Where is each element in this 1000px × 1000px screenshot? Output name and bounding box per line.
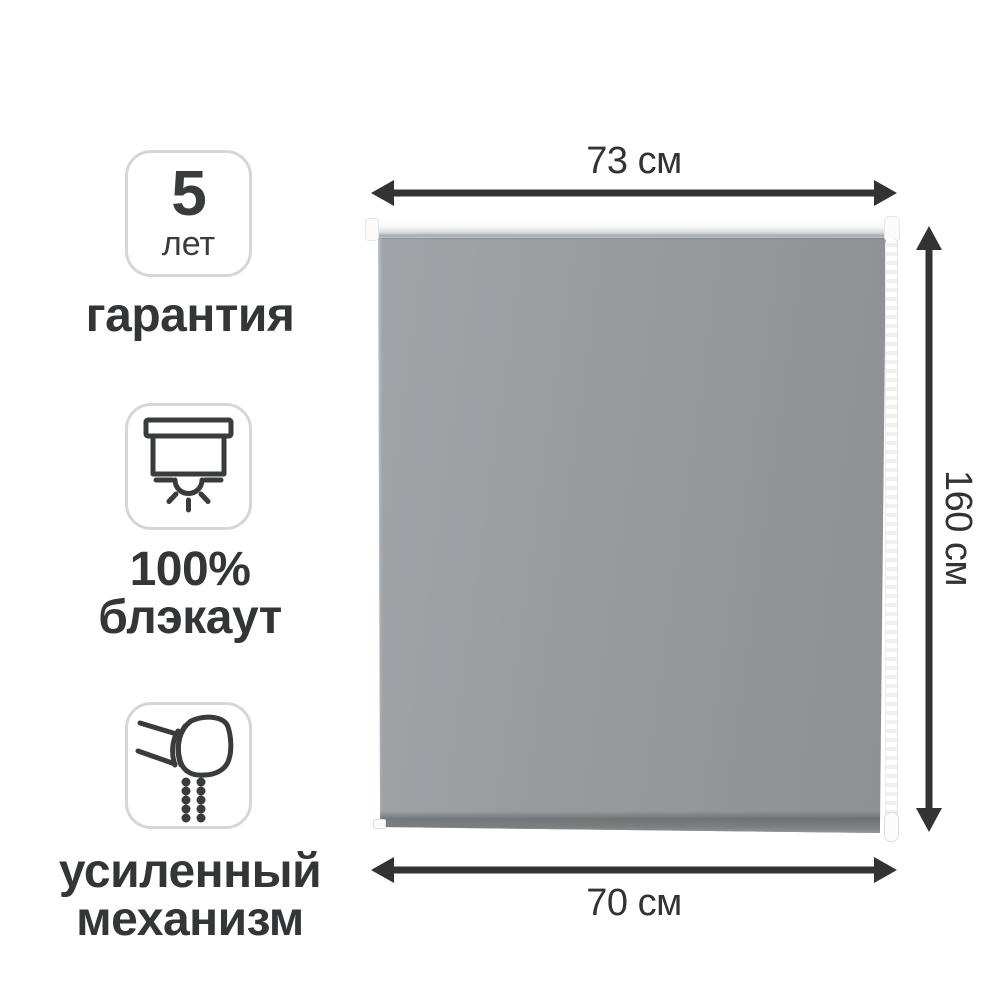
warranty-label: гарантия [10, 292, 370, 340]
cassette-endcap-left [365, 218, 379, 241]
warranty-badge: 5 лет [125, 150, 252, 277]
cassette-bar [371, 220, 899, 238]
bottom-width-arrow [368, 855, 900, 885]
warranty-years-unit: лет [162, 225, 215, 264]
roller-mechanism-chain-icon [125, 702, 252, 829]
mechanism-label-line2: механизм [10, 896, 370, 944]
mechanism-badge [125, 702, 252, 829]
blackout-blind-sun-icon [125, 403, 252, 530]
blackout-label-line2: блэкаут [10, 594, 370, 642]
blackout-badge [125, 403, 252, 530]
blackout-label-line1: 100% [10, 546, 370, 594]
warranty-years-number: 5 [171, 163, 206, 224]
bottom-bar-endcap [373, 819, 386, 829]
blind-fabric [378, 237, 886, 833]
blind-bottom-bar [378, 811, 886, 833]
mechanism-label: усиленный механизм [10, 848, 370, 944]
chain-clasp [884, 812, 899, 842]
top-width-label: 73 см [434, 140, 834, 183]
bottom-width-label: 70 см [434, 882, 834, 925]
blackout-label: 100% блэкаут [10, 546, 370, 642]
bead-chain [885, 238, 898, 826]
height-label: 160 см [936, 428, 980, 628]
mechanism-label-line1: усиленный [10, 848, 370, 896]
product-infographic: 5 лет гарантия 100% блэкаут [0, 0, 1000, 1000]
